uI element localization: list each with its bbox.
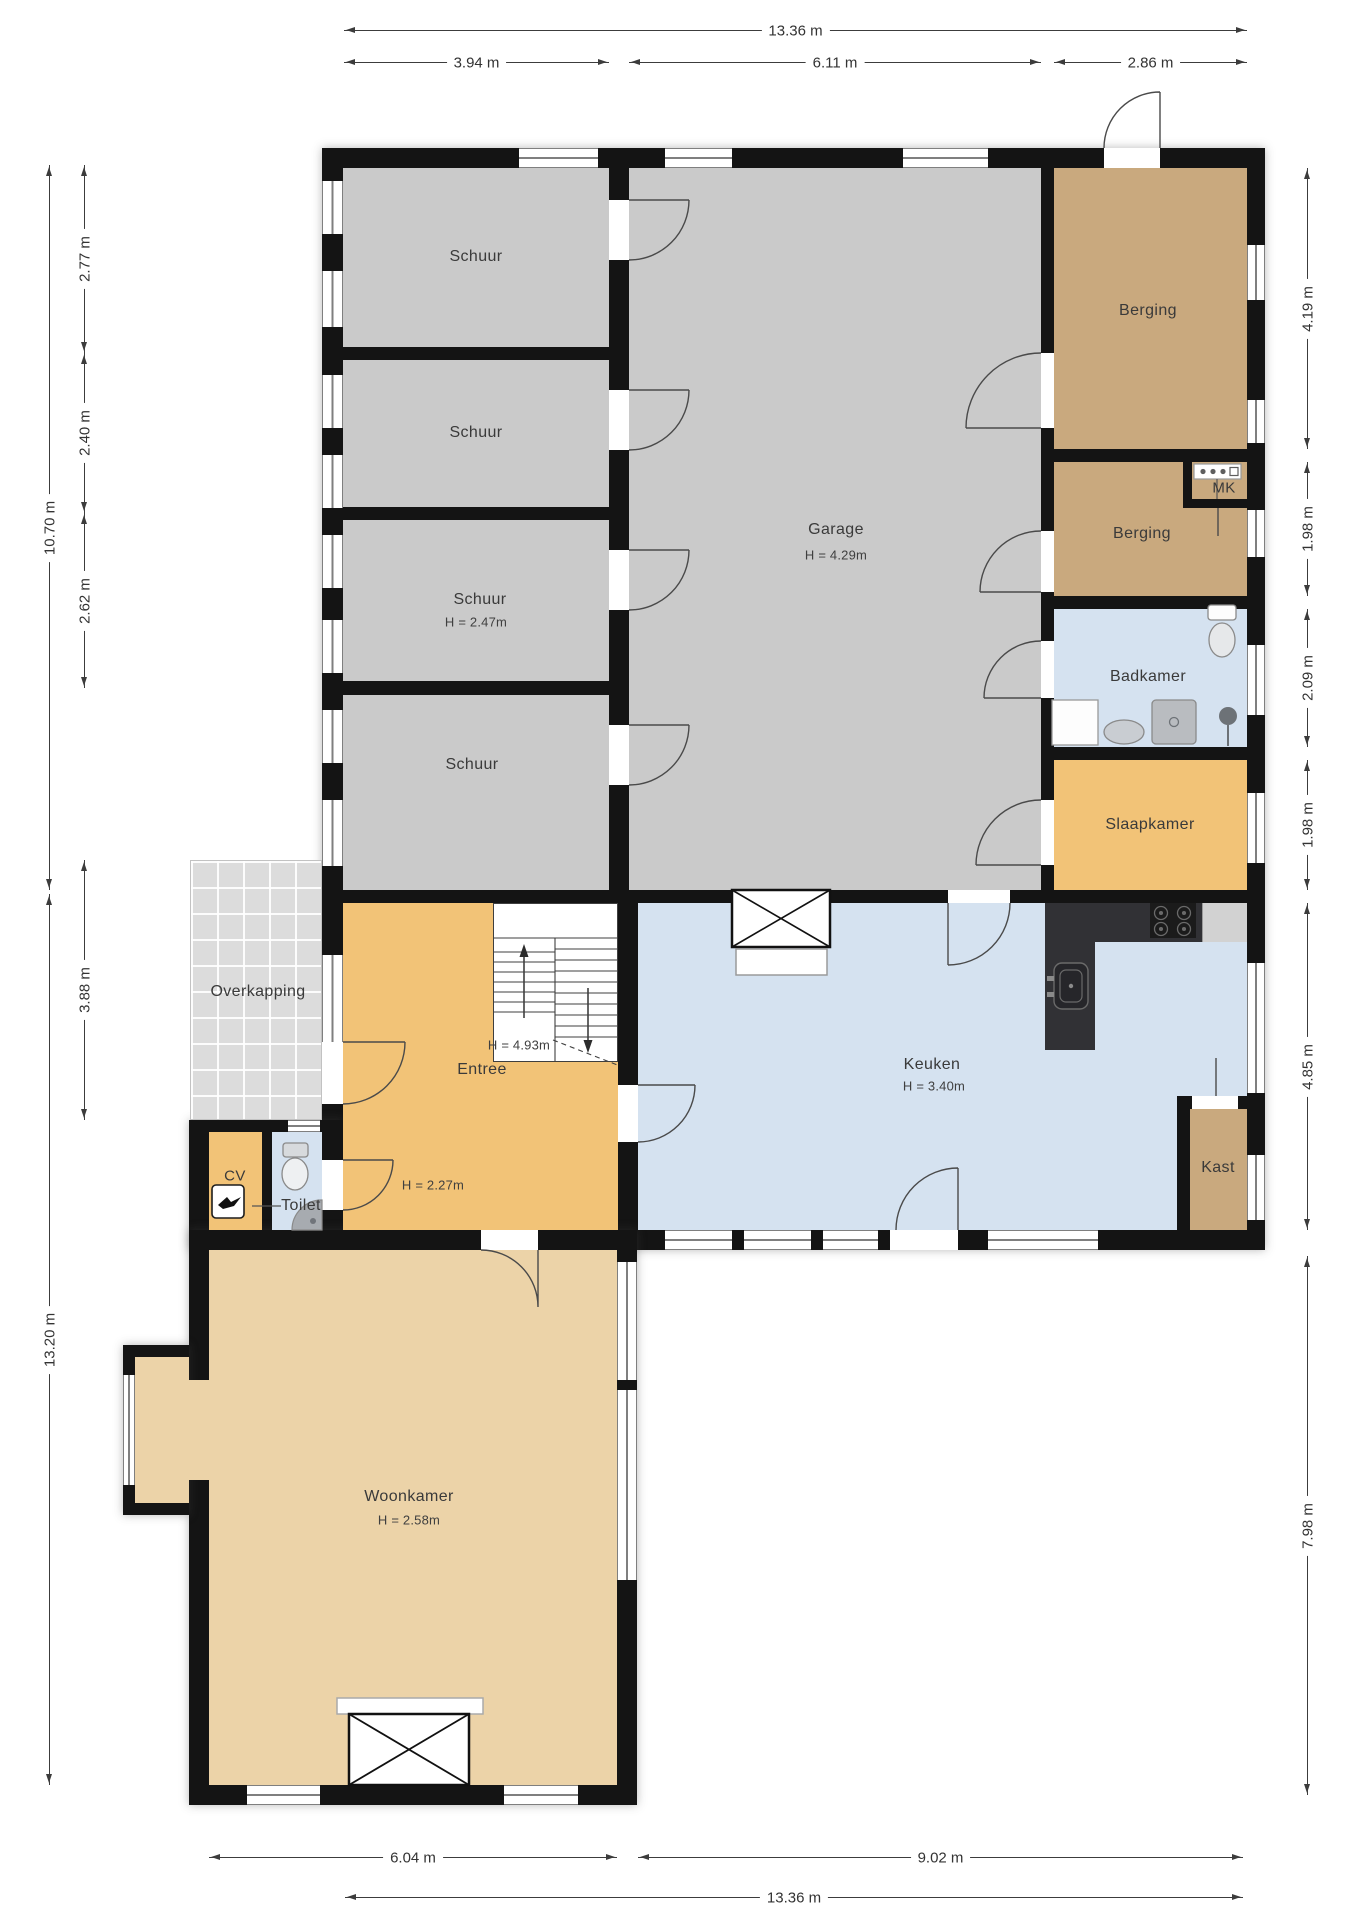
door-opening <box>1041 353 1054 428</box>
window <box>322 375 343 428</box>
door-opening <box>618 1085 638 1142</box>
window <box>1247 793 1265 863</box>
dim-label: 2.86 m <box>1121 55 1181 72</box>
dim-label: 13.36 m <box>760 1890 828 1907</box>
room-label-badkamer: Badkamer <box>1110 668 1186 686</box>
dim-right-seg-3: 2.09 m <box>1307 609 1308 747</box>
room-label-schuur-4: Schuur <box>445 756 498 774</box>
window <box>288 1120 320 1132</box>
window <box>665 148 732 168</box>
room-toilet <box>272 1132 322 1230</box>
door-opening <box>1192 1096 1238 1109</box>
window <box>1247 1155 1265 1220</box>
dim-left-total-lower: 13.20 m <box>49 894 50 1785</box>
room-bay-opening <box>189 1380 209 1480</box>
window <box>322 620 343 673</box>
window <box>617 1262 637 1380</box>
dim-label: 13.20 m <box>42 1305 59 1373</box>
room-label-cv: CV <box>224 1168 246 1185</box>
dim-label: 3.88 m <box>77 960 94 1020</box>
stove-icon <box>1150 903 1196 938</box>
dim-right-seg-5: 4.85 m <box>1307 903 1308 1230</box>
room-label-berging-2: Berging <box>1113 525 1171 543</box>
door-opening <box>1041 800 1054 865</box>
dim-left-seg-2: 2.40 m <box>84 353 85 513</box>
door-opening <box>609 200 629 260</box>
room-label-entree: Entree <box>457 1061 507 1079</box>
window <box>123 1375 135 1485</box>
window <box>322 455 343 508</box>
dim-left-seg-3: 2.62 m <box>84 513 85 688</box>
dim-bottom-total: 13.36 m <box>345 1897 1243 1898</box>
dim-right-seg-1: 4.19 m <box>1307 168 1308 449</box>
dim-label: 7.98 m <box>1300 1496 1317 1556</box>
window <box>1247 400 1265 443</box>
room-label-mk: MK <box>1212 480 1235 497</box>
room-label-overkapping: Overkapping <box>210 983 305 1001</box>
room-label-slaapkamer: Slaapkamer <box>1105 816 1194 834</box>
dim-label: 6.11 m <box>806 55 865 72</box>
room-label-woonkamer: Woonkamer <box>364 1488 454 1506</box>
door-opening <box>1041 531 1054 592</box>
dim-label: 4.19 m <box>1300 279 1317 339</box>
dim-label: 2.77 m <box>77 229 94 289</box>
kitchen-appliance <box>1202 903 1247 942</box>
room-label-schuur-3: Schuur <box>453 591 506 609</box>
door-opening <box>481 1230 538 1250</box>
window <box>823 1230 878 1250</box>
room-height-entree: H = 2.27m <box>402 1178 464 1193</box>
dim-label: 2.40 m <box>77 403 94 463</box>
room-height-woonkamer: H = 2.58m <box>378 1513 440 1528</box>
window <box>322 800 343 866</box>
window <box>1247 510 1265 557</box>
dim-label: 13.36 m <box>761 23 829 40</box>
door-opening <box>609 550 629 610</box>
window <box>322 271 343 327</box>
room-label-schuur-1: Schuur <box>449 248 502 266</box>
dim-right-seg-4: 1.98 m <box>1307 760 1308 890</box>
dim-label: 6.04 m <box>383 1850 443 1867</box>
dim-top-seg-3: 2.86 m <box>1054 62 1247 63</box>
dim-label: 9.02 m <box>911 1850 971 1867</box>
room-label-berging-1: Berging <box>1119 302 1177 320</box>
door-opening <box>609 390 629 450</box>
dim-right-seg-6: 7.98 m <box>1307 1256 1308 1795</box>
room-height-keuken: H = 3.40m <box>903 1079 965 1094</box>
dim-top-seg-2: 6.11 m <box>629 62 1041 63</box>
window <box>744 1230 811 1250</box>
window <box>1247 245 1265 300</box>
dim-left-seg-4: 3.88 m <box>84 860 85 1120</box>
dim-label: 1.98 m <box>1300 795 1317 855</box>
door-arc <box>1104 92 1160 148</box>
dim-bottom-seg-1: 6.04 m <box>209 1857 617 1858</box>
window <box>665 1230 732 1250</box>
dim-label: 2.62 m <box>77 571 94 631</box>
window <box>988 1230 1098 1250</box>
dim-bottom-seg-2: 9.02 m <box>638 1857 1243 1858</box>
window <box>322 535 343 588</box>
room-label-keuken: Keuken <box>904 1056 961 1074</box>
room-label-toilet: Toilet <box>281 1197 321 1215</box>
stairwell-height: H = 4.93m <box>488 1038 550 1053</box>
dim-top-seg-1: 3.94 m <box>344 62 609 63</box>
window <box>322 710 343 763</box>
dim-right-seg-2: 1.98 m <box>1307 462 1308 596</box>
dim-top-total: 13.36 m <box>344 30 1247 31</box>
window <box>247 1785 320 1805</box>
window <box>903 148 988 168</box>
door-opening <box>890 1230 958 1250</box>
dim-label: 10.70 m <box>42 493 59 561</box>
window <box>617 1390 637 1580</box>
window <box>322 955 343 1042</box>
wall-kast-left <box>1177 1096 1190 1230</box>
door-opening <box>322 1042 343 1104</box>
dim-left-seg-1: 2.77 m <box>84 165 85 353</box>
wall-mk-bottom <box>1183 499 1247 508</box>
kitchen-counter-leg <box>1045 903 1095 1050</box>
dim-label: 3.94 m <box>447 55 507 72</box>
window <box>1247 645 1265 715</box>
room-height-garage: H = 4.29m <box>805 548 867 563</box>
room-height-schuur-3: H = 2.47m <box>445 615 507 630</box>
room-bay-window <box>135 1357 189 1503</box>
floor-plan: Schuur Schuur Schuur H = 2.47m Schuur Ga… <box>0 0 1358 1920</box>
dim-left-total-upper: 10.70 m <box>49 165 50 890</box>
room-label-garage: Garage <box>808 521 864 539</box>
window <box>504 1785 578 1805</box>
dim-label: 2.09 m <box>1300 648 1317 708</box>
door-opening <box>609 725 629 785</box>
dim-label: 1.98 m <box>1300 499 1317 559</box>
room-label-kast: Kast <box>1201 1159 1235 1177</box>
door-opening <box>1104 148 1160 168</box>
room-label-schuur-2: Schuur <box>449 424 502 442</box>
door-opening <box>322 1160 343 1210</box>
window <box>322 181 343 234</box>
dim-label: 4.85 m <box>1300 1037 1317 1097</box>
door-opening <box>1041 641 1054 698</box>
room-schuur-4 <box>343 695 609 890</box>
door-opening <box>948 890 1010 903</box>
window <box>1247 963 1265 1093</box>
window <box>519 148 598 168</box>
